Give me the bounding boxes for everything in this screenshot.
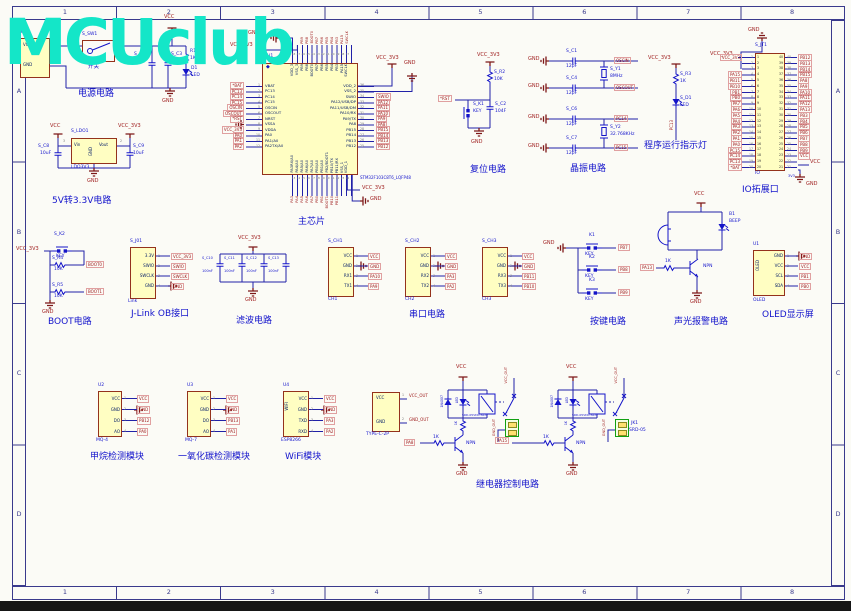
pin-number: 3 [258,95,260,99]
pin-number: 18 [757,154,761,158]
net-label-3v3: 3V3 [788,175,795,179]
ref-label: S_C8 [38,145,49,150]
pin-number: 27 [360,134,364,138]
pin-number: 8 [757,96,759,100]
pin-name: SWCLK [140,274,154,278]
pin-number: 38 [787,67,791,71]
net-label: PB11 [336,196,340,205]
value-label: 12pF [566,152,577,157]
connector-pin-row: 2VCC [787,262,827,272]
caption-boot: BOOT电路 [48,318,92,328]
connector-pin-row: 3PA3 [311,416,351,427]
pin-number: 14 [757,131,761,135]
pin-number: 37 [346,53,350,56]
net-label: VCC [137,395,149,402]
ref-label: S_C12 [246,257,257,261]
pin-number: 4 [757,73,759,77]
pin-number: 32 [787,102,791,106]
connector-pin-row: 2GND [356,262,398,272]
connector-pin-row: 3PB11 [510,272,552,282]
caption-m3: WiFi模块 [285,453,321,463]
value-label: 100nF [246,270,257,274]
pin-number: 10 [749,108,753,112]
key-symbol [582,244,602,250]
connector-pin-row: 2GND [510,262,552,272]
pin-number: 6 [751,85,753,89]
connector-pin-row: 3PA10 [356,272,398,282]
io-left-inner-numbers: 1234567891011121314151617181920 [757,55,766,171]
pin-number: 33 [360,101,364,105]
chip-top-names: VDD_3VSS_3PB9PB8BOOT0PB7PB6PB5PB4PB3PA15… [291,64,351,104]
reset-key-symbol [464,105,470,121]
pin-number: 14 [297,177,301,180]
flyback-diode-symbol [445,396,452,408]
value-label: MQ-7 [185,439,197,444]
pin-number: 26 [360,139,364,143]
pin-number: 4 [213,430,215,434]
pin-number: 2 [356,265,358,269]
chip-left-numbers: 123456789101112 [250,83,260,149]
pin-number: 5 [751,79,753,83]
net-label-gnd: GND [690,300,701,306]
net-label: PA3 [324,417,335,424]
net-label: PA2 [233,143,244,150]
pin-number: 2 [402,418,404,422]
relay-led-symbol [460,396,471,408]
value-label: 32.768KHz [610,133,634,138]
net-label: GND_OUT [603,419,607,436]
alarm-wires [656,203,729,298]
connector-pin-row: 3PB1 [787,272,827,282]
pin-name: Vout [99,143,108,147]
m1-pin-names: VCCGNDDOAO [100,394,120,438]
pin-number: 3 [63,140,65,144]
chip-pin-row: PA2 [198,144,244,150]
m3-pin-names: VCCGNDTXDRXD [290,394,307,438]
pin-number: 43 [316,53,320,56]
net-label-vcc3: VCC_3V3 [477,53,500,59]
pin-number: 17 [749,148,753,152]
caption-reset: 复位电路 [470,166,506,176]
pin-number: 4 [787,285,789,289]
pin-number: 1 [158,255,160,259]
net-label: PB0 [799,283,811,290]
pin-name: PA8 [349,122,356,126]
pin-number: 16 [306,177,310,180]
ref-label: S_C13 [268,257,279,261]
net-label-vcc: VCC [694,192,704,198]
chip-pin-row: PB12 [376,144,422,150]
relay-terminal[interactable] [505,419,519,437]
pin-number: 29 [360,123,364,127]
value-label: 10uF [133,152,144,157]
net-label-gnd: GND [245,298,256,304]
filter-cap-labels: S_C10100nFS_C11100nFS_C12100nFS_C13100nF [202,257,290,274]
net-label: PB12 [376,143,390,150]
pin-number: 2 [751,62,753,66]
gnd-symbol [248,288,258,296]
value-label: LDO3V3 [71,166,89,171]
connector-pin-row: 4PB10 [510,282,552,292]
pin-name: AO [114,430,120,434]
value-label: CH3 [482,298,491,303]
ref-label: S_K2 [54,233,65,238]
net-label: VCC [799,263,811,270]
key-symbol [582,289,602,295]
value-label: 1N4007 [551,395,555,408]
caption-m2: 一氧化碳检测模块 [178,453,250,463]
connector-pin-row: 3SWCLK [158,272,200,282]
ch3-pin-names: VCCGNDRX3TX3 [484,252,506,292]
ref-label: S_CH1 [328,240,343,245]
schematic-viewport: 12345678 12345678 ABCD ABCD [0,0,851,611]
ref-label: S_C10 [202,257,213,261]
value-label: 12pF [566,92,577,97]
net-label-gnd: GND [471,140,482,146]
pin-number: 27 [779,131,783,135]
pin-number: 23 [341,177,345,180]
ref-label: U1 [753,243,759,248]
ref-label: S_C11 [224,257,235,261]
pin-number: 37 [779,73,783,77]
net-label: PA2 [324,428,335,435]
net-label: OSCIN [614,57,631,64]
pin-number: 21 [779,166,783,170]
pin-number: 5 [258,106,260,110]
ref-label: S_R2 [494,71,505,76]
value-label: 10uF [40,152,51,157]
value-label: 1K [455,421,459,425]
connector-pin-row: 4GND [158,282,200,292]
transistor-label: NPN [703,265,712,270]
ref-label: S_J01 [130,240,142,245]
crystal-symbol [600,124,608,139]
pin-number: 18 [749,154,753,158]
caption-relay: 继电器控制电路 [476,481,539,491]
pin-number: 28 [779,125,783,129]
net-label: PB8 [618,266,630,273]
pin-number: 39 [779,62,783,66]
value-label: 1K [680,80,686,85]
net-label-gnd: GND [528,84,539,90]
pin-number: 3 [510,275,512,279]
pin-number: 17 [311,177,315,180]
pin-number: 12 [757,120,761,124]
io-pin-row: *BAT [698,165,742,171]
net-label: *RST [438,95,452,102]
pin-name: PA2TX/A0 [265,144,283,148]
value-label: 10K [54,295,63,300]
pin-name: SWIO [143,264,154,268]
net-label: *BAT [728,164,742,171]
key-symbol [582,266,602,272]
net-label: PB11 [522,273,536,280]
crystal-symbol [600,66,608,81]
pin-number: 31 [787,108,791,112]
ref-label: S_C9 [133,145,144,150]
bottom-window-edge [0,601,851,611]
pin-name: GND [298,408,307,412]
ref-label: K1 [589,234,595,239]
net-label-gnd: GND [528,115,539,121]
pin-number: 22 [779,160,783,164]
gnd-symbol [165,88,175,96]
m1-pin-nets: 1VCC2GND3PB124PA0 [124,394,164,438]
net-label: GND [799,253,812,260]
pin-number: 30 [779,114,783,118]
ref-label: K3 [589,279,595,284]
pin-name: GND [497,264,506,268]
connector-name: IO [755,172,760,177]
connector-pin-row: 1VCC [213,394,253,405]
ref-label: B1 [729,213,735,218]
pin-number: 40 [779,56,783,60]
net-label: VCC [445,253,457,260]
schematic-sheet[interactable]: 12345678 12345678 ABCD ABCD [0,0,851,611]
pin-name: RX1 [344,274,352,278]
value-label: KEY [473,110,482,115]
gnd-symbol [568,462,578,470]
net-label: PB13 [226,417,240,424]
pin-number: 10 [256,134,260,138]
oled-pin-names: GNDVCCSCLSDA [762,252,783,292]
pin-number: 44 [311,53,315,56]
alarm-led-symbol [719,221,730,233]
pin-number: 24 [779,148,783,152]
ref-label: S_CH2 [405,240,420,245]
connector-pin-row: 1VCC [510,252,552,262]
pin-number: 40 [331,53,335,56]
pin-number: 48 [292,53,296,56]
pin-name: SDA [775,284,783,288]
io-right-nets: PB12PB13PB14PB15PA8PA9PA10PA11PA12PA13PB… [798,55,838,171]
pin-number: 1 [751,56,753,60]
value-label: SRD-05 [629,429,646,434]
connector-pin-row: 2GND [311,405,351,416]
pin-number: 42 [321,53,325,56]
net-label-vcc3: VCC_3V3 [16,247,39,253]
pin-number: 3 [356,275,358,279]
io-left-nets: VCC_3V3PA15PB11PB10PB1PB0PA7PA6PA5PA4PA3… [698,55,742,171]
pin-number: 28 [787,125,791,129]
pin-name: VCC [112,397,120,401]
net-label-gnd: GND [162,99,173,105]
oled-pin-nets: 1GND2VCC3PB14PB0 [787,252,827,292]
pin-name: DO [114,419,120,423]
pin-number: 2 [213,408,215,412]
net-label: VCC [522,253,534,260]
pin-number: 13 [757,125,761,129]
connector-pin-row: 2SWIO [158,262,200,272]
caption-jlink: J-Link OB接口 [131,310,189,320]
net-label: SWCLK [171,273,189,280]
ref-label: S_C2 [495,103,506,108]
gnd-symbol [795,174,805,182]
io-pin-row [798,165,838,171]
pin-number: 8 [258,123,260,127]
pin-name: GND [145,284,154,288]
pin-number: 24 [346,177,350,180]
pin-number: 9 [757,102,759,106]
pin-number: 5 [757,79,759,83]
transistor-label: NPN [576,442,585,447]
pin-number: 1 [402,394,404,398]
pin-number: 2 [120,140,122,144]
connector-pin-row: 3PA3 [433,272,475,282]
pin-number: 4 [433,285,435,289]
connector-pin-row: 2GND [124,405,164,416]
net-label: GND_OUT [493,419,497,436]
net-label-vcc3: VCC_3V3 [376,56,399,62]
pin-name: PC13 [265,89,275,93]
pin-number: 1 [311,397,313,401]
gnd-symbol [692,290,702,298]
net-label: PA1 [226,428,237,435]
ref-label: S_LDO1 [71,130,88,135]
pin-number: 3 [124,419,126,423]
chip-left-nets: *BATPC13PC14PC15OSCINOSCOUT*RSTVCC_3V3PA… [198,83,244,149]
pin-number: 37 [787,73,791,77]
caption-io: IO拓展口 [742,186,779,196]
net-label-gnd: GND [456,472,467,478]
pin-name: PC15 [265,100,275,104]
gnd-symbol [45,300,55,308]
net-label-vcc: VCC [456,365,466,371]
caption-crystal: 晶振电路 [570,165,606,175]
pin-number: 24 [787,148,791,152]
pin-number: 18 [316,177,320,180]
pin-number: 36 [360,84,364,88]
net-label: GND [522,263,535,270]
pin-number: 21 [787,166,791,170]
net-label: VCC_3V3 [171,253,193,260]
pin-number: 22 [336,177,340,180]
pin-number: 27 [787,131,791,135]
pin-name: TX2 [421,284,429,288]
pin-number: 47 [297,53,301,56]
connector-pin-row: 1VCC_3V3 [158,252,200,262]
pin-name: SWCLK [345,64,349,77]
pin-number: 3 [751,67,753,71]
pin-number: 38 [779,67,783,71]
buzzer-symbol [658,225,671,245]
net-label-gnd: GND [528,57,539,63]
ch2-pin-nets: 1VCC2GND3PA34PA2 [433,252,475,292]
ref-label: S_Y2 [610,126,621,131]
pin-name: TXD [299,419,307,423]
m2-pin-nets: 1VCC2GND3PB134PA1 [213,394,253,438]
value-label: 12pF [566,65,577,70]
pin-name: VSSA [265,122,275,126]
value-label: 10K [54,268,63,273]
net-label: GND [445,263,458,270]
chip-bottom-numbers: 131415161718192021222324 [291,177,351,180]
pin-name: TX1 [344,284,352,288]
pin-number: 4 [124,430,126,434]
pin-number: 2 [433,265,435,269]
pin-number: 2 [787,265,789,269]
net-label-vcc3: VCC_3V3 [118,124,141,130]
ch3-pin-nets: 1VCC2GND3PB114PB10 [510,252,552,292]
m3-pin-nets: 1VCC2GND3PA34PA2 [311,394,351,438]
pin-number: 7 [757,91,759,95]
connector-pin-row: 3PB12 [124,416,164,427]
transistor-label: NPN [466,442,475,447]
caption-chip: 主芯片 [298,218,325,228]
pin-name: Vin [74,143,80,147]
ref-label: S_R5 [52,284,63,289]
value-label: 10K [494,78,503,83]
pin-name: VCC [498,254,506,258]
ch1-pin-nets: 1VCC2GND3PA104PA9 [356,252,398,292]
pin-number: 2 [510,265,512,269]
net-label: SWIO [171,263,186,270]
pin-number: 15 [749,137,753,141]
component-body-label: OLED [756,260,760,271]
connector-pin-row: 1VCC [433,252,475,262]
pin-number: 4 [311,430,313,434]
pin-name: VCC [201,397,209,401]
caption-oled: OLED显示屏 [762,311,814,321]
value-label: 100nF [268,270,279,274]
pin-number: 12 [749,120,753,124]
pin-number: 6 [258,112,260,116]
pin-name: RX2 [421,274,429,278]
caption-ldo: 5V转3.3V电路 [52,197,111,207]
io-right-inner-numbers: 4039383736353433323130292827262524232221 [769,55,783,171]
pin-number: 16 [757,143,761,147]
relay-led-symbol [570,396,581,408]
pin-number: 2 [124,408,126,412]
pin-number: 35 [787,85,791,89]
ch1-pin-names: VCCGNDRX1TX1 [330,252,352,292]
net-label-gnd: GND [748,28,759,34]
pin-name: AO [203,430,209,434]
relay-terminal[interactable] [615,419,629,437]
net-label-gnd: GND [42,310,53,316]
jlink-pin-nets: 1VCC_3V32SWIO3SWCLK4GND [158,252,200,292]
boot-key-symbol [52,247,72,253]
net-label: VCC [324,395,336,402]
caption-keys: 按键电路 [590,318,626,328]
jlink-pin-names: 3.3VSWIOSWCLKGND [132,252,154,292]
pin-number: 32 [360,106,364,110]
pin-name: GND [111,408,120,412]
pin-number: 1 [757,56,759,60]
value-label: KEY [585,298,594,303]
pin-number: 38 [341,53,345,56]
net-label: BOOT1 [86,288,104,295]
ref-label: U4 [283,384,289,389]
pin-number: 4 [356,285,358,289]
connector-pin-row: 4PB0 [787,282,827,292]
pin-number: 28 [360,128,364,132]
net-label-vcc3: VCC_3V3 [238,236,261,242]
pin-number: 3 [787,275,789,279]
value-label: SRD-05VDC-SL-C [572,414,597,417]
chip-top-numbers: 484746454443424140393837 [291,53,351,56]
net-label: GND [324,406,337,413]
gnd-symbol [458,462,468,470]
caption-filter: 滤波电路 [236,317,272,327]
connector-pin-row: 1VCC [356,252,398,262]
gnd-symbol [89,168,99,176]
ref-label: S_Y1 [610,68,621,73]
net-label: PA15 [495,437,509,444]
caption-power: 电源电路 [78,90,114,100]
net-label: PA10 [368,273,382,280]
pin-number: 12 [256,145,260,149]
